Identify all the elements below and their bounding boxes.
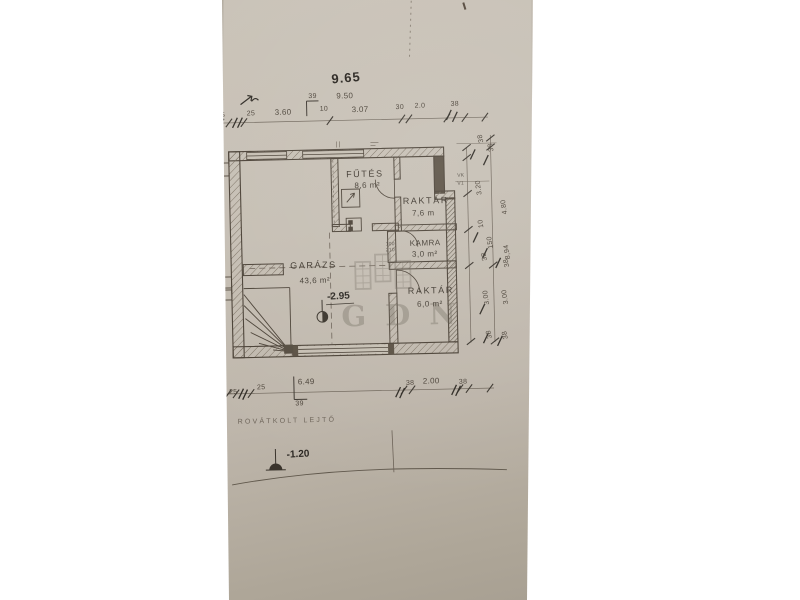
- door-size-tag: 100: [386, 242, 395, 247]
- dim-right: 38: [487, 142, 496, 152]
- dim-top: 3.60: [275, 109, 292, 117]
- floorplan-drawing: [0, 0, 800, 600]
- dim-right: 38: [477, 134, 486, 144]
- slope-line: [231, 428, 507, 485]
- room-label-garazs: GARÁZS: [290, 261, 337, 271]
- door-frame-fixture: [346, 218, 361, 231]
- watermark-letters: GDN: [341, 296, 475, 333]
- dim-right: 3.00: [501, 289, 510, 305]
- dim-bottom: 2.00: [423, 377, 440, 385]
- room-label-raktar-1: RAKTÁR: [403, 196, 449, 206]
- dim-top: 25: [217, 112, 226, 119]
- left-margin-stubs: [217, 163, 232, 300]
- dim-top: 39: [308, 93, 317, 100]
- dim-total-printed: 9.50: [336, 92, 353, 100]
- slope-note: ROVÁTKOLT LEJTŐ: [238, 417, 337, 426]
- level-garage: -2.95: [327, 291, 350, 302]
- crease-line: [408, 1, 412, 57]
- paper-right-edge: [531, 0, 540, 600]
- dim-right: 38: [501, 330, 510, 340]
- level-marker-terrain: [265, 449, 285, 470]
- dim-right: 38: [485, 330, 494, 340]
- flue-tag: VK: [457, 174, 464, 179]
- outer-walls: [229, 147, 459, 358]
- pencil-squiggle: [251, 98, 258, 101]
- dim-right: 8,94: [503, 244, 512, 260]
- room-area-futes: 8,6 m²: [354, 182, 380, 191]
- dim-right: 3.00: [482, 290, 491, 306]
- door-swings: [375, 179, 420, 294]
- dim-top: 30: [396, 104, 405, 111]
- staircase: [243, 264, 293, 355]
- dim-bottom: 38: [459, 379, 468, 386]
- dim-right: 4.80: [500, 199, 509, 215]
- dim-top: 25: [247, 110, 256, 117]
- reference-brackets: [287, 101, 325, 400]
- room-label-kamra: KAMRA: [410, 239, 441, 248]
- dimension-lines: [219, 97, 502, 401]
- room-area-raktar-1: 7,6 m: [412, 209, 435, 218]
- room-label-futes: FŰTÉS: [346, 169, 384, 179]
- flue-block: [434, 156, 445, 193]
- dim-top: 3.07: [352, 106, 369, 114]
- paper: GDN 9.659.5025253.6039103.07302.03838383…: [0, 0, 800, 600]
- dim-total-handwritten: 9.65: [331, 70, 361, 86]
- dim-right: 38: [481, 252, 490, 262]
- room-area-raktar-2: 6,0 m²: [417, 300, 443, 309]
- dim-top: 10: [320, 106, 329, 113]
- paper-marks: [238, 0, 468, 150]
- dim-right: 3.20: [475, 180, 484, 196]
- dimension-ticks: [218, 113, 501, 399]
- dim-bottom: 25: [257, 384, 266, 391]
- garage-door-opening: [292, 343, 394, 356]
- room-label-raktar-2: RAKTÁR: [408, 286, 454, 296]
- level-marker-garage: [317, 299, 355, 322]
- window-openings: [247, 150, 364, 160]
- dim-top: 2.0: [415, 102, 426, 109]
- door-size-tag: 210: [386, 248, 395, 253]
- boiler-symbol: [341, 189, 359, 207]
- dim-right: 150: [486, 236, 495, 249]
- dashed-lines: [247, 159, 389, 345]
- dim-right: 38: [503, 258, 512, 268]
- photo-of-floorplan: GDN 9.659.5025253.6039103.07302.03838383…: [0, 0, 800, 600]
- level-terrain: -1.20: [286, 449, 309, 460]
- dim-bottom: 25: [229, 389, 238, 396]
- dim-top: 38: [451, 101, 460, 108]
- flue-tag: V1: [457, 182, 464, 187]
- plan-content: GDN 9.659.5025253.6039103.07302.03838383…: [0, 0, 800, 600]
- labels-layer: 9.659.5025253.6039103.07302.03838383.204…: [0, 0, 793, 8]
- dim-bottom: 39: [295, 400, 304, 407]
- ink-mark: [463, 3, 465, 10]
- room-area-garazs: 43,6 m²: [299, 277, 330, 286]
- dim-right: 10: [477, 219, 485, 228]
- interior-walls: [217, 156, 459, 347]
- pencil-arrow: [240, 95, 252, 104]
- paper-left-edge: [214, 0, 224, 600]
- room-area-kamra: 3,0 m²: [412, 250, 438, 259]
- dim-bottom: 6.49: [298, 378, 315, 386]
- hand-slash-marks: [232, 109, 503, 402]
- watermark-blocks: [355, 254, 411, 289]
- dim-bottom: 38: [406, 380, 415, 387]
